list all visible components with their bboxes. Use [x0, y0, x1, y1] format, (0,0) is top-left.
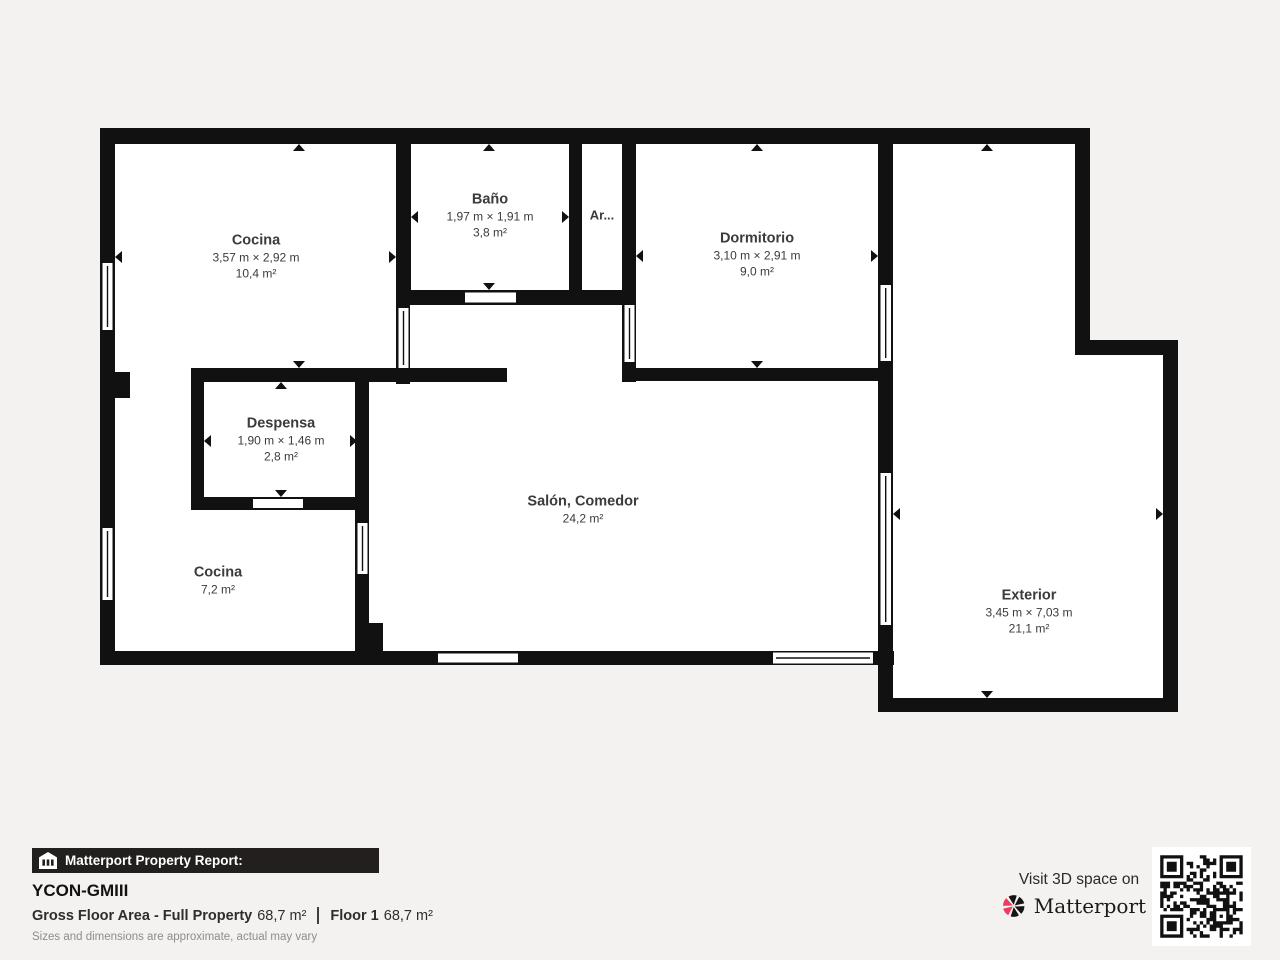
floor-1-label: Floor 1 — [330, 908, 378, 924]
room-label-exterior: Exterior 3,45 m × 7,03 m 21,1 m² — [985, 587, 1072, 638]
report-bar-title: Matterport Property Report: — [65, 853, 243, 868]
matterport-pinwheel-icon — [1001, 893, 1027, 919]
matterport-house-icon — [39, 852, 57, 869]
stats-separator — [317, 907, 319, 924]
matterport-brand: Matterportʸ — [1001, 893, 1158, 919]
report-header-bar: Matterport Property Report: — [32, 848, 379, 873]
matterport-wordmark: Matterport — [1034, 894, 1146, 918]
room-label-salon-comedor: Salón, Comedor 24,2 m² — [527, 493, 638, 528]
floor-area-stats: Gross Floor Area - Full Property 68,7 m²… — [32, 907, 433, 924]
room-label-bano: Baño 1,97 m × 1,91 m 3,8 m² — [446, 191, 533, 242]
room-label-cocina-2: Cocina 7,2 m² — [194, 564, 242, 599]
qr-code — [1152, 847, 1251, 946]
room-label-armario: Ar... — [590, 206, 615, 223]
gross-floor-area-label: Gross Floor Area - Full Property — [32, 908, 252, 924]
room-label-dormitorio: Dormitorio 3,10 m × 2,91 m 9,0 m² — [713, 230, 800, 281]
room-label-cocina-1: Cocina 3,57 m × 2,92 m 10,4 m² — [212, 232, 299, 283]
qr-code-pattern — [1152, 847, 1251, 946]
matterport-floor-plan-report: Cocina 3,57 m × 2,92 m 10,4 m² Baño 1,97… — [0, 0, 1280, 960]
property-name: YCON-GMIII — [32, 881, 128, 901]
gross-floor-area-value: 68,7 m² — [257, 908, 306, 924]
visit-3d-text: Visit 3D space on — [1019, 871, 1139, 889]
disclaimer-text: Sizes and dimensions are approximate, ac… — [32, 931, 317, 943]
floor-1-value: 68,7 m² — [384, 908, 433, 924]
room-label-despensa: Despensa 1,90 m × 1,46 m 2,8 m² — [237, 415, 324, 466]
floor-plan-canvas — [0, 0, 1280, 960]
